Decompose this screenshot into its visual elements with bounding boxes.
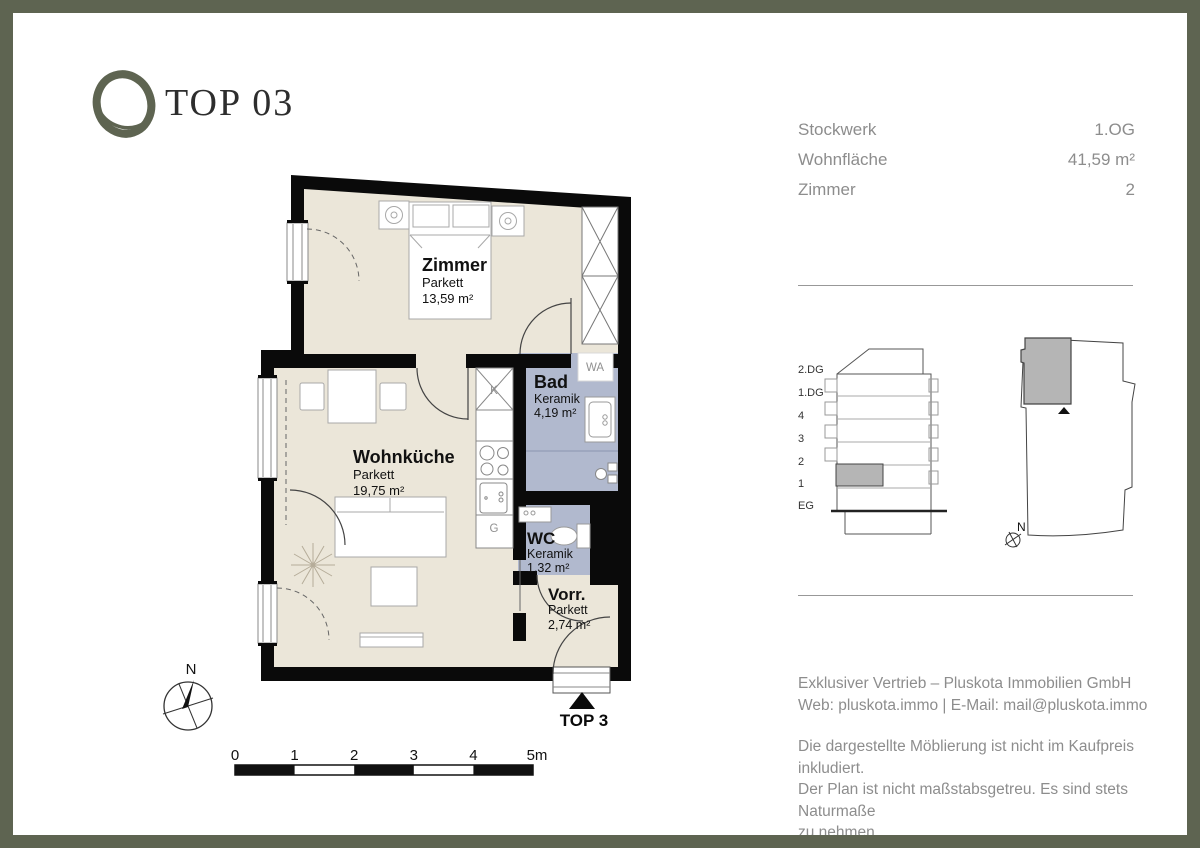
chair	[380, 383, 406, 410]
page-frame: TOP 03 Stockwerk 1.OG Wohnfläche 41,59 m…	[0, 0, 1200, 848]
site-plan: N	[988, 323, 1148, 558]
info-label: Stockwerk	[798, 120, 876, 142]
info-value: 41,59 m²	[1068, 150, 1135, 172]
compass-north-label: N	[186, 661, 197, 678]
nightstand	[379, 201, 409, 229]
scale-bar: 0 1 2 3 4 5m	[231, 747, 548, 775]
svg-text:1,32 m²: 1,32 m²	[527, 561, 569, 575]
compass-icon: N	[163, 661, 213, 730]
window-zimmer	[287, 220, 308, 284]
divider-bottom	[798, 595, 1133, 596]
svg-text:1: 1	[290, 747, 298, 764]
dining-table	[328, 370, 376, 423]
info-row-zimmer: Zimmer 2	[798, 180, 1135, 202]
entrance-door	[553, 667, 610, 693]
entrance-label: TOP 3	[560, 711, 609, 730]
info-value: 2	[1126, 180, 1135, 202]
legal-line: Die dargestellte Möblierung ist nicht im…	[798, 736, 1158, 779]
compass-north-label: N	[1017, 520, 1026, 534]
room-name: Bad	[534, 372, 568, 392]
divider-top	[798, 285, 1133, 286]
building-footprint	[1021, 338, 1071, 404]
shower-drain	[596, 469, 607, 480]
vendor-line: Web: pluskota.immo | E-Mail: mail@plusko…	[798, 695, 1158, 717]
svg-text:0: 0	[231, 747, 239, 764]
vendor-info: Exklusiver Vertrieb – Pluskota Immobilie…	[798, 673, 1158, 716]
room-name: Vorr.	[548, 585, 585, 604]
pillow	[453, 205, 489, 227]
info-row-wohnflaeche: Wohnfläche 41,59 m²	[798, 150, 1135, 172]
info-label: Wohnfläche	[798, 150, 887, 172]
legal-line: Der Plan ist nicht maßstabsgetreu. Es si…	[798, 779, 1158, 822]
legal-note: Die dargestellte Möblierung ist nicht im…	[798, 736, 1158, 844]
unit-location-marker	[836, 464, 883, 486]
floorplan: Zimmer Parkett 13,59 m² Wohnküche Parket…	[153, 163, 663, 793]
site-compass-icon: N	[1005, 520, 1026, 547]
legal-line: zu nehmen.	[798, 822, 1158, 844]
room-name: WC	[527, 529, 555, 548]
section-floor-labels: 2.DG 1.DG 4 3 2 1 EG	[798, 364, 824, 512]
svg-text:19,75 m²: 19,75 m²	[353, 483, 405, 498]
brand-logo-ring-icon	[89, 69, 159, 139]
page-title: TOP 03	[165, 81, 294, 125]
kitchen-sink	[480, 483, 507, 513]
wardrobe	[582, 207, 618, 344]
svg-text:Parkett: Parkett	[422, 275, 464, 290]
coffee-table	[371, 567, 417, 606]
window-wohnkueche-upper	[258, 375, 277, 481]
info-row-stockwerk: Stockwerk 1.OG	[798, 120, 1135, 142]
info-label: Zimmer	[798, 180, 856, 202]
entrance-arrow-icon	[1058, 407, 1070, 414]
fridge-label: K	[490, 385, 498, 397]
svg-text:Keramik: Keramik	[534, 392, 581, 406]
room-name: Wohnküche	[353, 447, 455, 467]
window-wohnkueche-lower	[258, 581, 277, 646]
svg-text:3: 3	[798, 433, 804, 445]
svg-text:2: 2	[350, 747, 358, 764]
svg-text:4: 4	[798, 410, 804, 422]
entrance-arrow-icon	[569, 692, 595, 709]
nightstand	[492, 206, 524, 236]
sideboard	[360, 633, 423, 647]
chair	[300, 383, 324, 410]
svg-text:2.DG: 2.DG	[798, 364, 824, 376]
svg-text:2,74 m²: 2,74 m²	[548, 618, 590, 632]
svg-text:Parkett: Parkett	[548, 603, 588, 617]
svg-text:Parkett: Parkett	[353, 467, 395, 482]
svg-text:EG: EG	[798, 500, 814, 512]
svg-text:Keramik: Keramik	[527, 547, 574, 561]
svg-text:4,19 m²: 4,19 m²	[534, 406, 576, 420]
svg-text:1.DG: 1.DG	[798, 387, 824, 399]
svg-text:5m: 5m	[527, 747, 548, 764]
info-value: 1.OG	[1094, 120, 1135, 142]
pillow	[413, 205, 449, 227]
svg-text:2: 2	[798, 456, 804, 468]
washing-machine-label: WA	[586, 362, 604, 374]
svg-text:1: 1	[798, 478, 804, 490]
room-name: Zimmer	[422, 255, 487, 275]
svg-text:3: 3	[410, 747, 418, 764]
vendor-line: Exklusiver Vertrieb – Pluskota Immobilie…	[798, 673, 1158, 695]
svg-text:13,59 m²: 13,59 m²	[422, 291, 474, 306]
dishwasher-label: G	[490, 523, 499, 535]
building-section: 2.DG 1.DG 4 3 2 1 EG	[788, 338, 953, 548]
svg-text:4: 4	[469, 747, 477, 764]
